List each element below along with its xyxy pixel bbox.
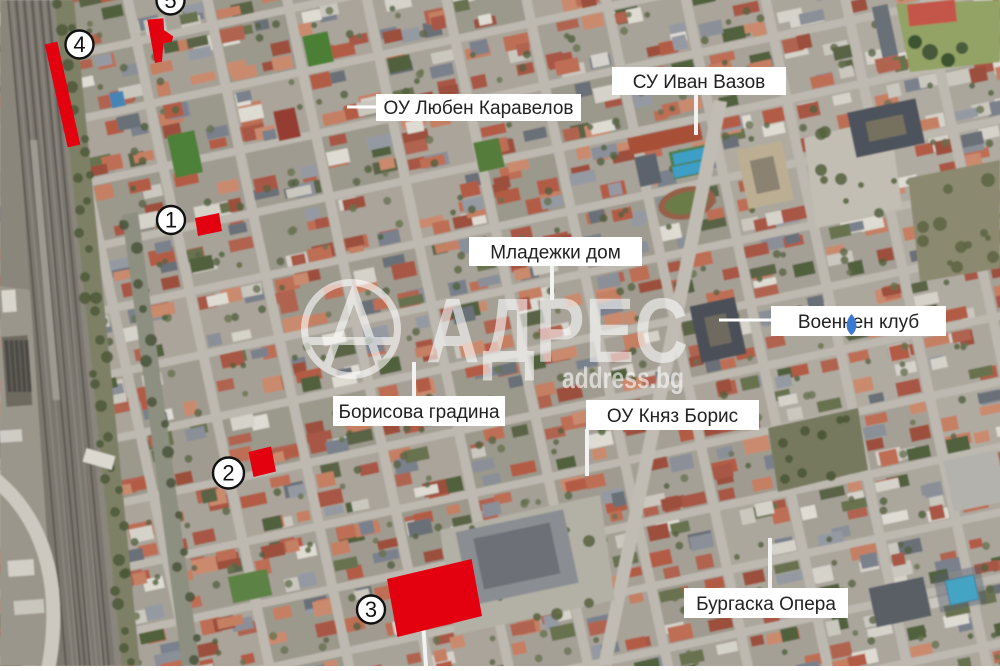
- svg-text:Бургаска Опера: Бургаска Опера: [696, 594, 836, 615]
- svg-text:address.bg: address.bg: [562, 362, 684, 395]
- svg-text:1: 1: [165, 208, 177, 233]
- svg-text:2: 2: [222, 461, 234, 486]
- svg-text:Младежки дом: Младежки дом: [490, 242, 621, 263]
- svg-text:5: 5: [164, 0, 176, 13]
- svg-text:СУ Иван Вазов: СУ Иван Вазов: [633, 72, 766, 93]
- svg-text:ОУ Любен Каравелов: ОУ Любен Каравелов: [384, 98, 574, 119]
- svg-text:3: 3: [365, 597, 377, 622]
- svg-text:4: 4: [73, 32, 85, 57]
- svg-text:ОУ Княз Борис: ОУ Княз Борис: [607, 406, 738, 427]
- svg-text:Военнен клуб: Военнен клуб: [798, 312, 919, 333]
- svg-text:Борисова градина: Борисова градина: [338, 402, 499, 423]
